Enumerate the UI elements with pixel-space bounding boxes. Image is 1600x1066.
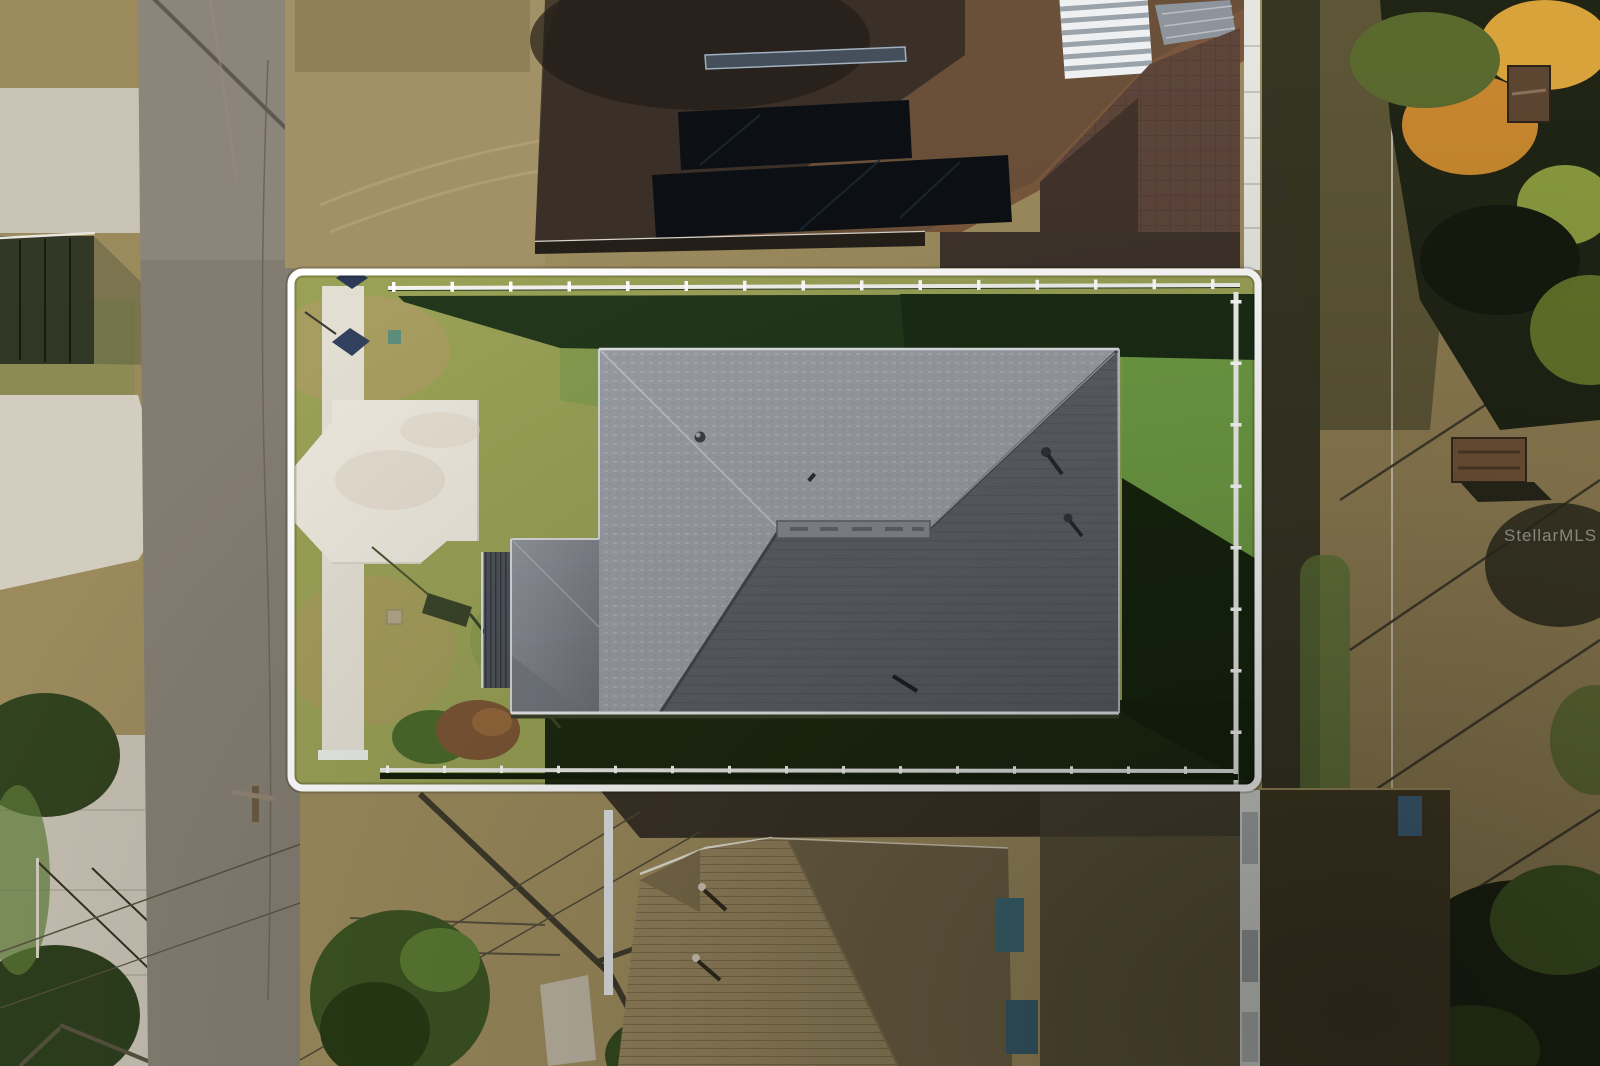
mls-watermark: StellarMLS — [1504, 526, 1597, 545]
aerial-photo: StellarMLS — [0, 0, 1600, 1066]
vignette — [0, 0, 1600, 1066]
aerial-photo-canvas: StellarMLS — [0, 0, 1600, 1066]
